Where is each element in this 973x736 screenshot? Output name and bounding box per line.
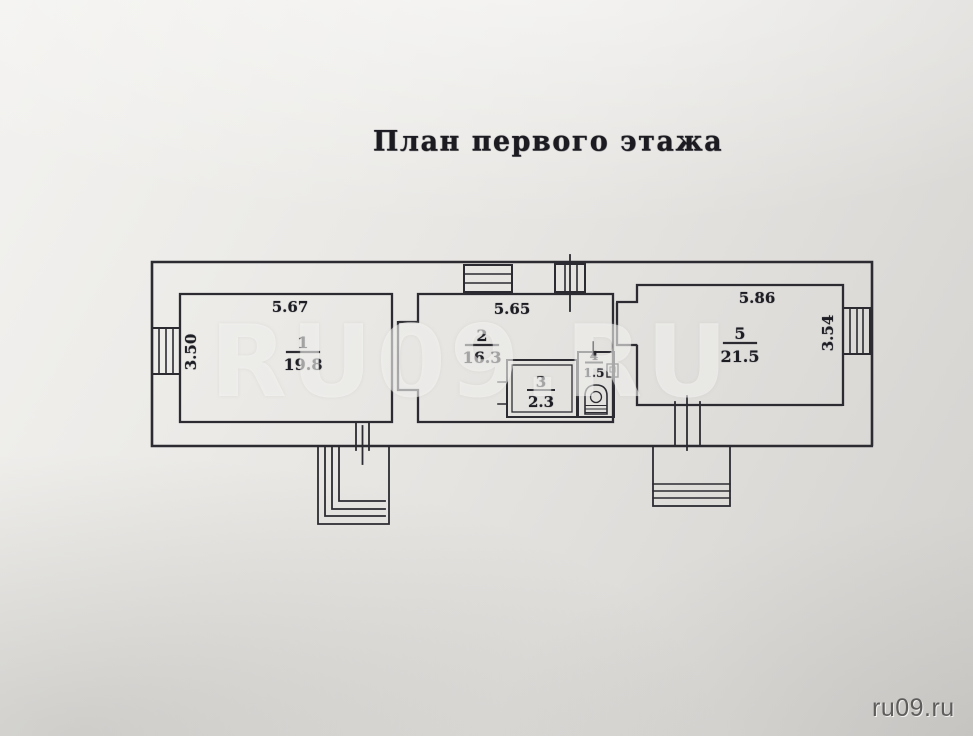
floor-plan-drawing: 5.67 5.65 5.86 3.50 3.54 1 19.8 2 16.3 3… <box>0 0 973 736</box>
entrance-steps-left-icon <box>318 446 389 524</box>
dim-room5-depth: 3.54 <box>819 315 837 352</box>
dim-room2-width: 5.65 <box>494 300 531 318</box>
back-door-window-icon <box>555 255 585 311</box>
room-5-outline <box>617 285 843 405</box>
door-room3 <box>498 382 507 404</box>
dim-room1-width: 5.67 <box>272 298 309 316</box>
toilet-icon <box>585 385 607 414</box>
door-room1-to-porch <box>356 422 369 464</box>
room-3-number: 3 <box>536 373 546 391</box>
room-2-number: 2 <box>476 326 487 345</box>
dim-room1-depth: 3.50 <box>182 334 200 371</box>
window-right-icon <box>843 308 870 354</box>
room-5-number: 5 <box>734 324 745 343</box>
site-credit: ru09.ru <box>872 694 955 723</box>
room-3-area: 2.3 <box>528 393 554 411</box>
room-4-area: 1.5 <box>584 366 605 380</box>
room-1-number: 1 <box>297 333 308 352</box>
room-4-number: 4 <box>590 348 599 363</box>
back-entrance-steps-icon <box>464 265 512 292</box>
entrance-steps-right-icon <box>653 446 730 506</box>
room-2-area: 16.3 <box>463 348 502 367</box>
window-left-icon <box>152 328 180 374</box>
dim-room5-width: 5.86 <box>739 289 776 307</box>
scanned-floor-plan-photo: { "photo": { "title": "План первого этаж… <box>0 0 973 736</box>
room-5-area: 21.5 <box>721 347 760 366</box>
room-1-area: 19.8 <box>284 355 323 374</box>
